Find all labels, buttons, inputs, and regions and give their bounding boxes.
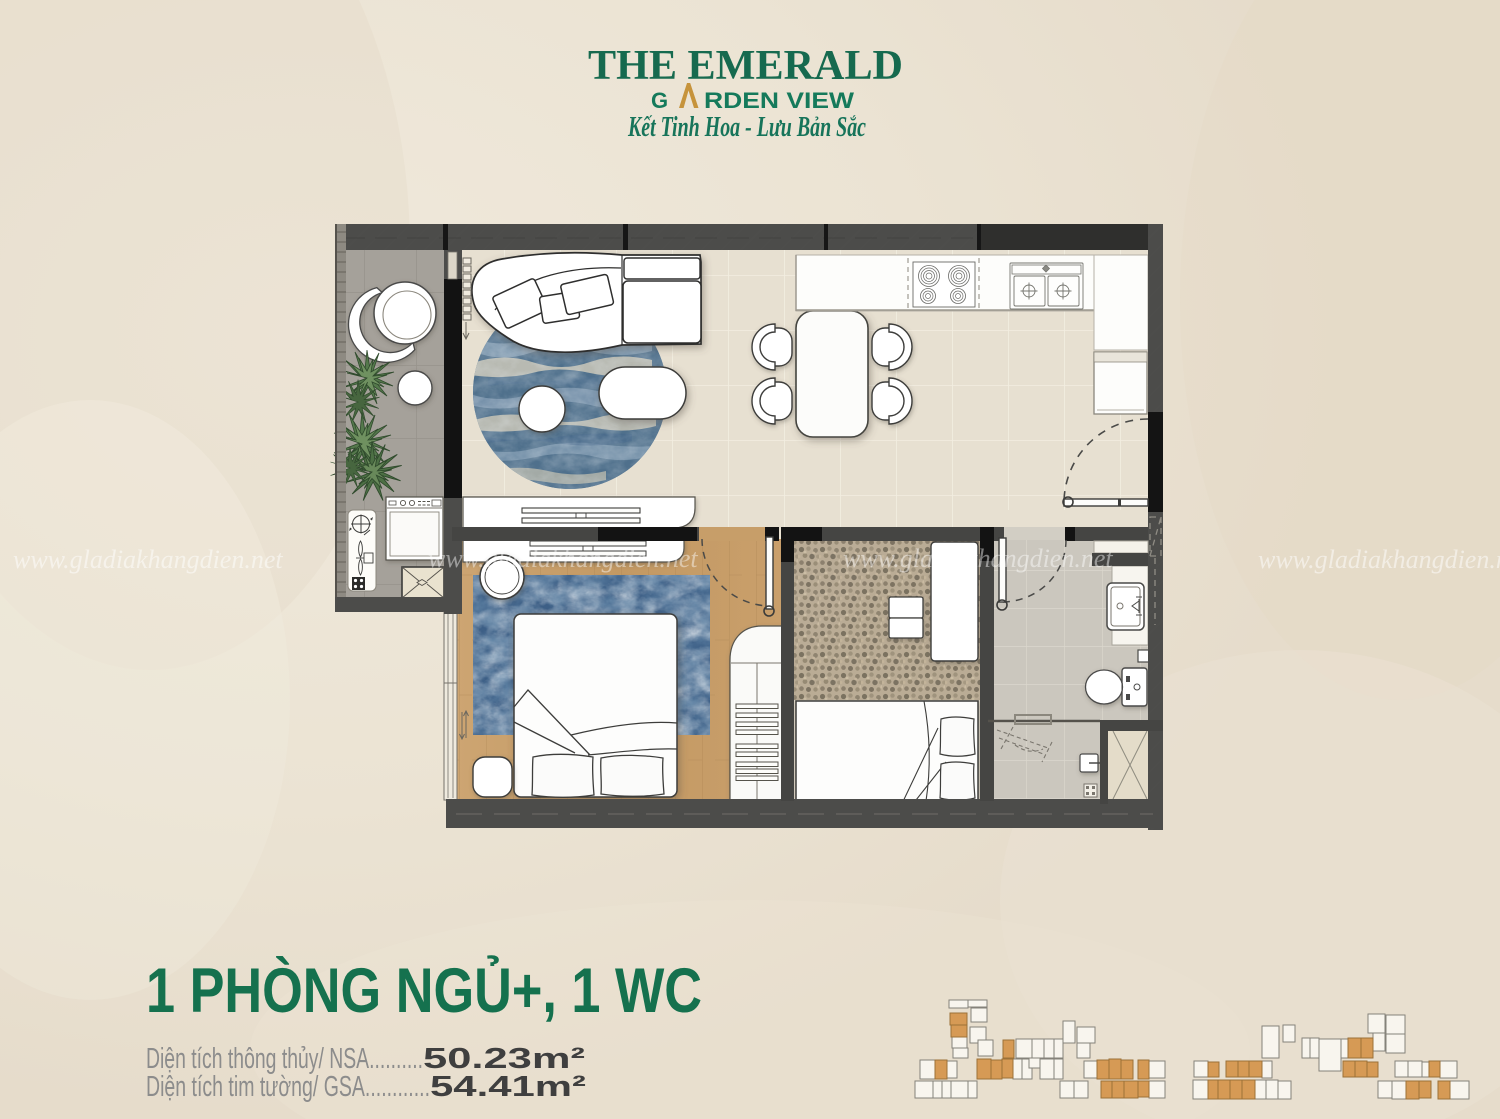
svg-text:G: G <box>651 88 668 113</box>
svg-text:www.gladiakhangdien.net: www.gladiakhangdien.net <box>843 544 1113 573</box>
svg-text:www.gladiakhangdien.net: www.gladiakhangdien.net <box>13 545 283 574</box>
svg-text:www.gladiakhangdien.net: www.gladiakhangdien.net <box>428 544 698 573</box>
svg-text:RDEN VIEW: RDEN VIEW <box>704 88 854 113</box>
svg-text:Kết Tinh Hoa - Lưu Bản Sắc: Kết Tinh Hoa - Lưu Bản Sắc <box>627 111 866 143</box>
svg-text:THE EMERALD: THE EMERALD <box>588 43 903 89</box>
svg-text:1 PHÒNG NGỦ+, 1 WC: 1 PHÒNG NGỦ+, 1 WC <box>146 955 702 1026</box>
svg-text:54.41m²: 54.41m² <box>430 1071 586 1103</box>
svg-text:Diện tích tim tường/ GSA......: Diện tích tim tường/ GSA............ <box>146 1071 430 1103</box>
svg-text:www.gladiakhangdien.net: www.gladiakhangdien.net <box>1258 545 1500 574</box>
